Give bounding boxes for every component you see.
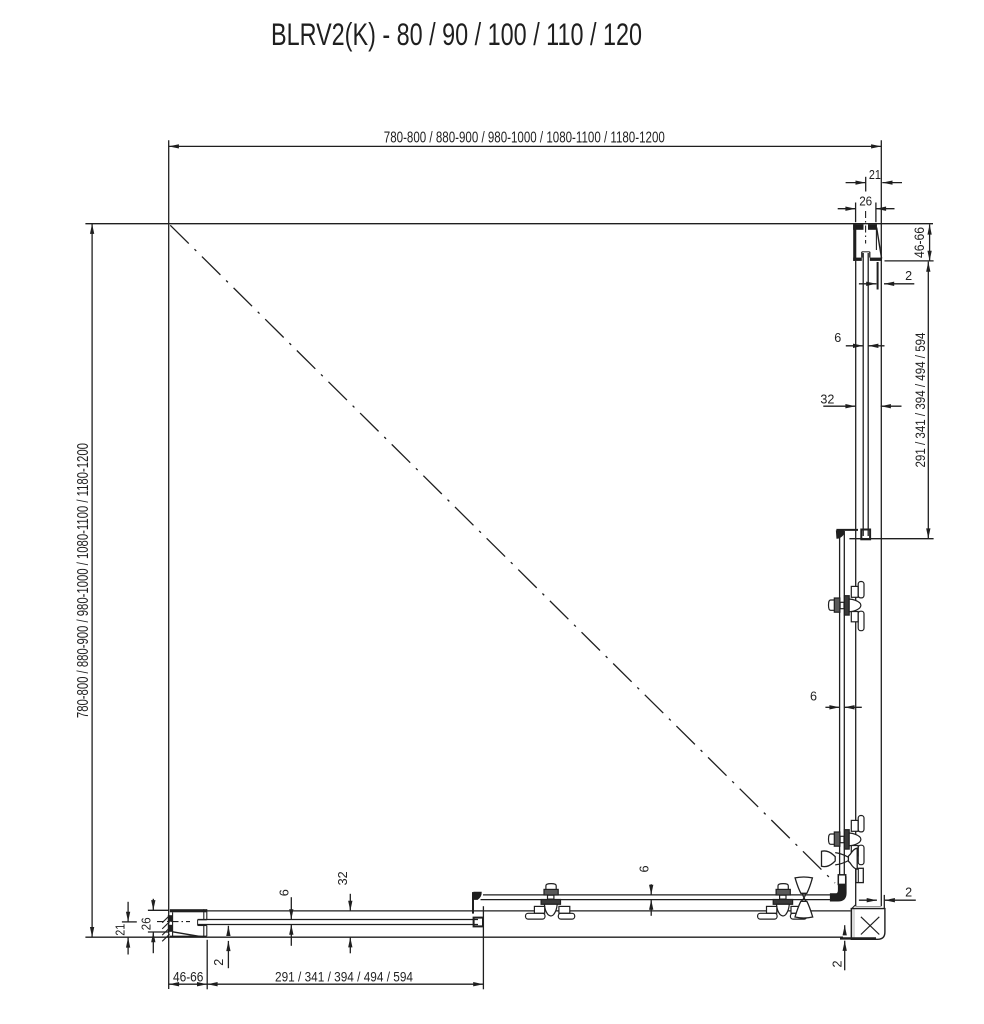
svg-text:291 / 341 / 394 / 494 / 594: 291 / 341 / 394 / 494 / 594 (275, 969, 413, 984)
svg-text:BLRV2(K) - 80 / 90 / 100 / 110: BLRV2(K) - 80 / 90 / 100 / 110 / 120 (271, 16, 642, 52)
svg-text:32: 32 (820, 392, 834, 407)
svg-text:780-800 / 880-900 / 980-1000 /: 780-800 / 880-900 / 980-1000 / 1080-1100… (384, 130, 665, 147)
svg-text:6: 6 (277, 889, 292, 896)
svg-text:46-66: 46-66 (912, 227, 927, 258)
svg-text:26: 26 (138, 917, 153, 930)
svg-text:32: 32 (335, 871, 350, 885)
svg-text:21: 21 (113, 924, 128, 936)
svg-text:26: 26 (859, 194, 872, 209)
svg-text:46-66: 46-66 (173, 969, 204, 984)
svg-text:6: 6 (637, 866, 652, 873)
svg-text:2: 2 (830, 961, 845, 968)
svg-text:780-800 / 880-900 / 980-1000 /: 780-800 / 880-900 / 980-1000 / 1080-1100… (75, 443, 92, 718)
svg-text:2: 2 (905, 885, 912, 900)
svg-text:291 / 341 / 394 / 494 / 594: 291 / 341 / 394 / 494 / 594 (913, 332, 928, 467)
svg-text:6: 6 (834, 330, 841, 345)
svg-text:2: 2 (905, 268, 912, 283)
svg-text:2: 2 (211, 959, 226, 966)
svg-text:6: 6 (810, 688, 817, 703)
svg-text:21: 21 (869, 167, 881, 182)
